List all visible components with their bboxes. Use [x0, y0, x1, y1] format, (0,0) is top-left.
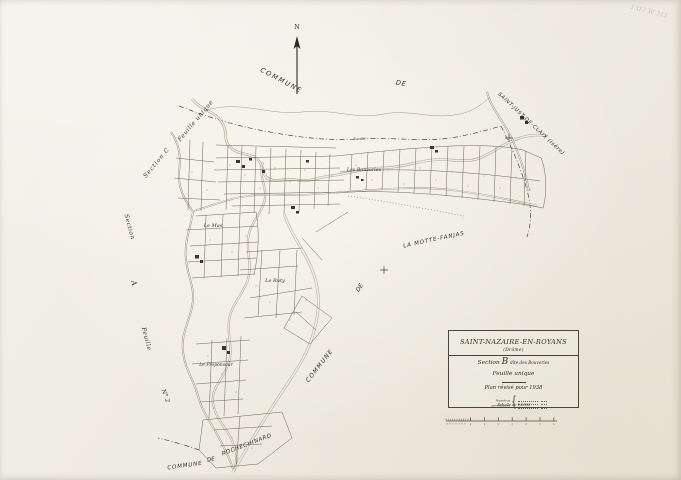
- place-les-bouveries: Les Bouveries: [347, 168, 381, 173]
- cartouche-commune: SAINT-NAZAIRE-EN-ROYANS: [460, 338, 567, 346]
- parcel-lines: [174, 140, 546, 468]
- place-le-mas: Le Mas: [204, 224, 223, 229]
- cartouche-section-letter: B: [502, 357, 509, 367]
- scanned-cadastral-map: 1317 W 312 N COMMUNE DE SAINT-JUST-DE-CL…: [0, 0, 681, 480]
- cartouche-legend-label2: parcellaires: [492, 404, 511, 407]
- cartouche-legend-label1: Numéros: [492, 400, 511, 403]
- scale-bar: [446, 417, 557, 424]
- river-bourne: [192, 99, 547, 471]
- contour-lines: [206, 98, 489, 116]
- cartouche-legend-labels: Numéros parcellaires: [480, 399, 510, 408]
- cartouche-section-name: dite des Bouveries: [510, 360, 549, 365]
- north-arrow-label: N: [294, 25, 299, 31]
- map-canvas: [0, 0, 681, 480]
- cartouche-divider: [502, 382, 526, 383]
- place-le-ruty: Le Ruty: [265, 279, 285, 284]
- place-le-proponsour: Le Proponsour: [199, 363, 233, 368]
- building-marks: [195, 116, 528, 354]
- roads: [171, 92, 538, 472]
- cartouche-sheet: Feuille unique: [449, 371, 578, 377]
- cartouche-legend-values: [539, 398, 547, 409]
- cartouche-commune-name: SAINT-NAZAIRE-EN-ROYANS (Drôme): [449, 339, 578, 356]
- cartouche-section-word: Section: [478, 360, 500, 366]
- cartouche-section-line: Section B dite des Bouveries: [449, 358, 578, 368]
- cartouche: SAINT-NAZAIRE-EN-ROYANS (Drôme) Section …: [448, 330, 579, 408]
- cartouche-department: (Drôme): [503, 348, 524, 353]
- cartouche-legend-brace: {: [511, 397, 517, 411]
- cartouche-title-line: SAINT-NAZAIRE-EN-ROYANS (Drôme): [449, 336, 578, 356]
- cartouche-legend: Numéros parcellaires {: [449, 398, 578, 409]
